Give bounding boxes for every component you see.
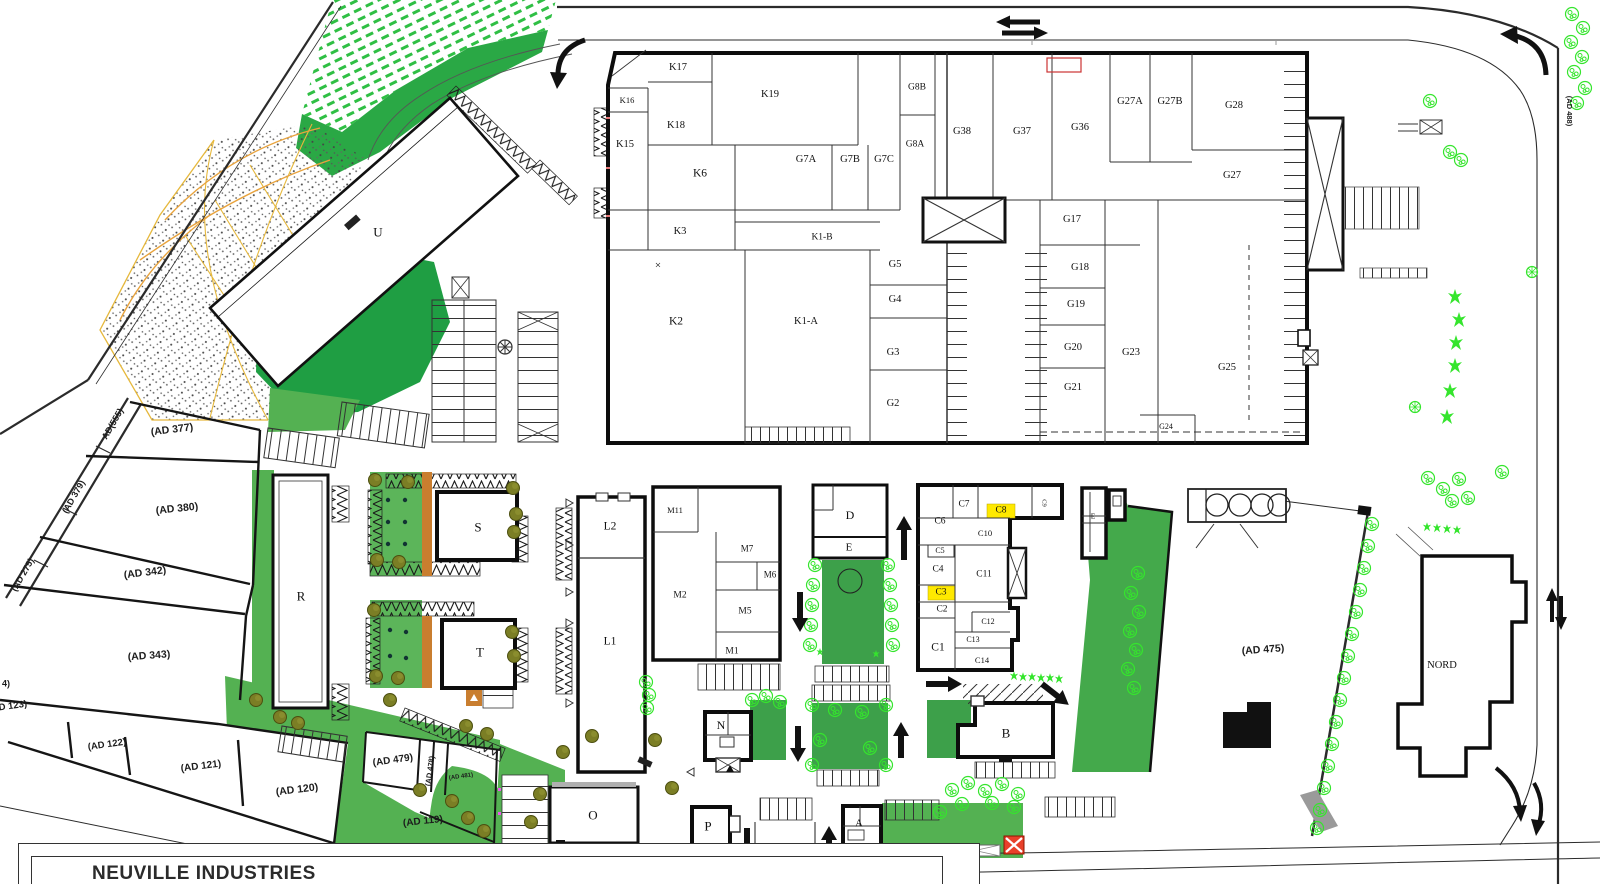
building-o: [550, 782, 638, 845]
building-s: [437, 492, 517, 560]
building-t: [442, 620, 515, 688]
dark-structure: [1223, 712, 1271, 748]
building-b: [958, 696, 1053, 762]
right-arrow-icon: [1002, 27, 1048, 40]
building-p: [692, 807, 740, 845]
building-l: [578, 493, 645, 772]
building-n: [705, 712, 751, 772]
building-a: [843, 806, 881, 846]
down-arrow-icon: [790, 726, 806, 762]
title-block-inner: NEUVILLE INDUSTRIES: [31, 856, 943, 884]
down-arrow-icon: [792, 592, 808, 632]
building-k-complex: [606, 50, 1343, 443]
building-r: [273, 475, 328, 708]
up-arrow-icon: [893, 722, 909, 758]
double-vertical-arrow-icon: [1546, 588, 1567, 630]
title-block: NEUVILLE INDUSTRIES: [18, 843, 980, 884]
company-title: NEUVILLE INDUSTRIES: [92, 863, 316, 884]
curved-arrow-top-right-icon: [1500, 26, 1546, 75]
site-plan-drawing: [0, 0, 1600, 884]
gray-ramp: [1300, 790, 1338, 832]
building-c: [918, 485, 1062, 670]
up-arrow-icon: [896, 516, 912, 560]
building-m: [653, 487, 780, 660]
curved-arrow-top-left-icon: [550, 40, 585, 89]
site-plan-page: K17K16K19K18K15K6G7AG7BG7CG8BG8AG38G37G3…: [0, 0, 1600, 884]
right-arrow-icon: [926, 676, 962, 692]
left-arrow-icon: [996, 16, 1040, 29]
silo-structure: [1188, 489, 1290, 548]
building-nord: [1396, 527, 1526, 776]
curved-arrows-bottom-right-icon: [1496, 768, 1545, 836]
